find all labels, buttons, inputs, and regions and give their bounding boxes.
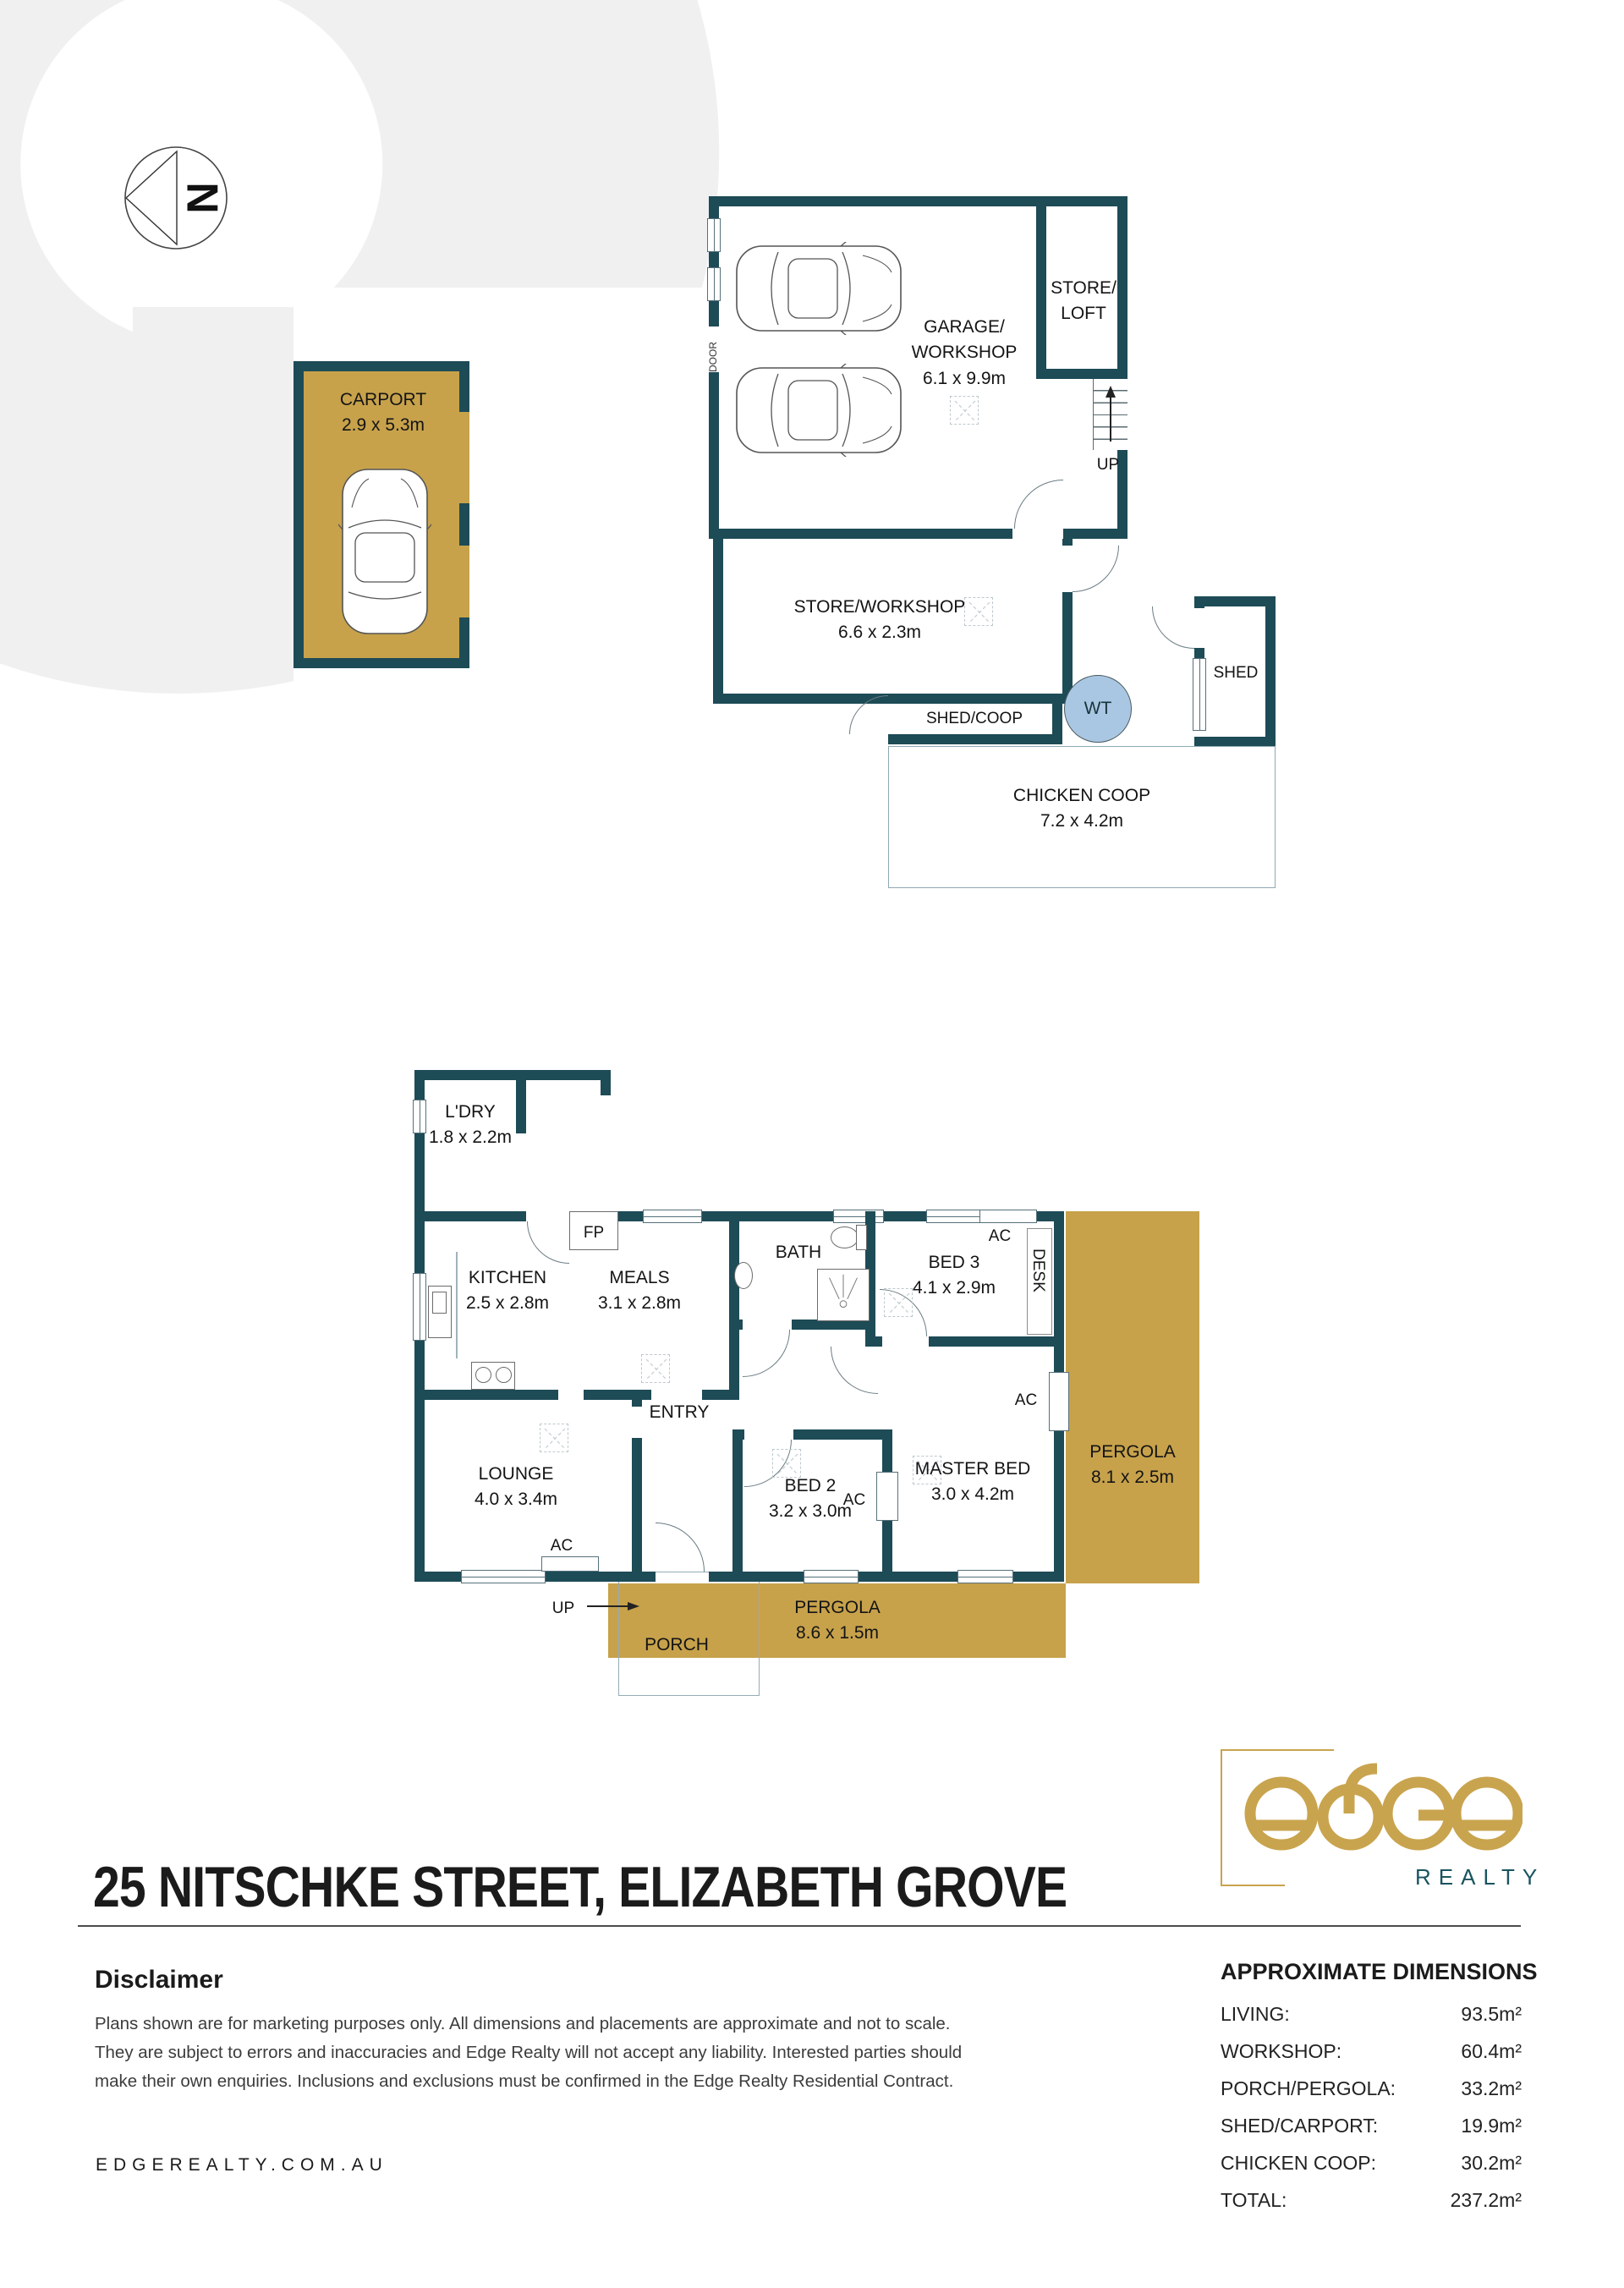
- dim-value: 237.2m²: [1451, 2189, 1522, 2212]
- wall: [459, 371, 469, 412]
- ceiling-fan-icon: [641, 1354, 670, 1383]
- wall: [414, 1211, 526, 1221]
- floorplan-page: N CARPORT2.9 x 5.3m DOOR UP STORE/LOFT G…: [0, 0, 1624, 2288]
- wall: [414, 1070, 425, 1100]
- wall: [875, 1336, 882, 1347]
- door-arc: [527, 1221, 569, 1264]
- ceiling-fan-icon: [540, 1424, 568, 1452]
- wall: [713, 539, 723, 704]
- water-tank: WT: [1064, 675, 1132, 743]
- logo-frame: [1221, 1885, 1285, 1886]
- meals-label: MEALS3.1 x 2.8m: [598, 1265, 681, 1317]
- ldry-label: L'DRY1.8 x 2.2m: [429, 1100, 512, 1151]
- window: [833, 1210, 884, 1223]
- wall: [294, 361, 469, 371]
- dim-value: 19.9m²: [1461, 2115, 1522, 2137]
- wall: [1117, 196, 1127, 539]
- wall: [884, 1211, 926, 1221]
- store-loft-label: STORE/LOFT: [1051, 276, 1116, 327]
- ceiling-fan-icon: [964, 597, 993, 626]
- dimensions-heading: APPROXIMATE DIMENSIONS: [1221, 1959, 1538, 1985]
- wall: [1063, 529, 1127, 539]
- dimensions-table: LIVING:93.5m² WORKSHOP:60.4m² PORCH/PERG…: [1221, 2003, 1522, 2226]
- wall: [414, 1133, 425, 1273]
- shower: [817, 1269, 870, 1321]
- wall: [414, 1390, 558, 1400]
- counter-line: [456, 1252, 458, 1358]
- logo-frame: [1221, 1749, 1222, 1886]
- wall: [1194, 596, 1276, 606]
- bed2-label: BED 23.2 x 3.0m: [769, 1473, 852, 1525]
- wall: [929, 1336, 1064, 1347]
- window: [957, 1570, 1013, 1583]
- ac-unit: [979, 1210, 1037, 1223]
- pergola-side-label: PERGOLA8.1 x 2.5m: [1089, 1440, 1176, 1491]
- ac-unit: [1049, 1372, 1069, 1431]
- dim-label: WORKSHOP:: [1221, 2040, 1341, 2063]
- svg-text:N: N: [177, 182, 226, 214]
- ceiling-fan-icon: [950, 396, 979, 425]
- ac-unit: [876, 1472, 898, 1521]
- dimension-row: SHED/CARPORT:19.9m²: [1221, 2115, 1522, 2137]
- up-arrow-icon: [585, 1599, 645, 1614]
- ac-label: AC: [989, 1225, 1011, 1248]
- wall: [294, 361, 304, 668]
- wall: [1194, 596, 1204, 608]
- wall: [1265, 596, 1276, 747]
- bed3-label: BED 34.1 x 2.9m: [913, 1250, 996, 1302]
- wall: [859, 1572, 957, 1582]
- dimension-row: LIVING:93.5m²: [1221, 2003, 1522, 2026]
- pergola-side-area: [1066, 1211, 1199, 1583]
- edge-logo-icon: [1243, 1761, 1522, 1859]
- door-arc: [1073, 546, 1119, 592]
- pergola-rear-label: PERGOLA8.6 x 1.5m: [794, 1595, 881, 1647]
- garage-label: GARAGE/WORKSHOP6.1 x 9.9m: [912, 315, 1018, 392]
- master-bed-label: MASTER BED3.0 x 4.2m: [915, 1457, 1031, 1508]
- wall: [1036, 196, 1046, 379]
- car-icon: [734, 364, 903, 457]
- wall: [459, 617, 469, 658]
- dim-label: TOTAL:: [1221, 2189, 1287, 2212]
- stove-burner: [475, 1367, 491, 1383]
- page-title: 25 NITSCHKE STREET, ELIZABETH GROVE: [93, 1854, 1067, 1920]
- door-arc: [656, 1523, 705, 1572]
- disclaimer-line: make their own enquiries. Inclusions and…: [95, 2067, 962, 2096]
- wall: [793, 1429, 892, 1440]
- shed-label: SHED: [1214, 661, 1259, 685]
- divider: [78, 1925, 1521, 1927]
- disclaimer-line: They are subject to errors and inaccurac…: [95, 2038, 962, 2067]
- wall: [1062, 539, 1073, 546]
- wall: [729, 1320, 743, 1330]
- door-arc: [831, 1347, 878, 1394]
- window: [413, 1273, 426, 1341]
- store-workshop-label: STORE/WORKSHOP6.6 x 2.3m: [794, 595, 966, 646]
- wall: [702, 1390, 739, 1400]
- dim-value: 33.2m²: [1461, 2077, 1522, 2100]
- window: [707, 218, 721, 252]
- door-arc: [1152, 606, 1194, 649]
- dimension-row: WORKSHOP:60.4m²: [1221, 2040, 1522, 2063]
- door-label: DOOR: [707, 328, 719, 372]
- window: [643, 1210, 702, 1223]
- kitchen-label: KITCHEN2.5 x 2.8m: [466, 1265, 549, 1317]
- dimension-row: TOTAL:237.2m²: [1221, 2189, 1522, 2212]
- stairs-up-arrow-icon: [1096, 381, 1125, 448]
- porch-label: PORCH: [645, 1632, 709, 1658]
- website-link[interactable]: EDGEREALTY.COM.AU: [96, 2155, 388, 2176]
- wall: [1194, 648, 1204, 658]
- ac-unit: [541, 1556, 599, 1572]
- up-label: UP: [552, 1597, 574, 1621]
- wall: [294, 658, 469, 668]
- wall: [709, 196, 1127, 206]
- entry-label: ENTRY: [650, 1400, 710, 1425]
- up-label: UP: [1097, 453, 1119, 477]
- door-arc: [743, 1330, 790, 1377]
- wall: [618, 1211, 643, 1221]
- toilet-tank: [856, 1225, 867, 1250]
- wall: [414, 1341, 425, 1582]
- disclaimer-line: Plans shown are for marketing purposes o…: [95, 2010, 962, 2038]
- logo-realty-label: REALTY: [1415, 1864, 1544, 1890]
- wall: [709, 529, 1012, 539]
- wall: [729, 1330, 739, 1390]
- window: [1193, 658, 1206, 731]
- dimension-row: PORCH/PERGOLA:33.2m²: [1221, 2077, 1522, 2100]
- window: [707, 267, 721, 301]
- ceiling-fan-icon: [884, 1288, 913, 1317]
- wall: [713, 694, 1073, 704]
- dim-value: 30.2m²: [1461, 2152, 1522, 2175]
- toilet: [831, 1226, 859, 1248]
- wall: [1062, 592, 1073, 694]
- logo-frame: [1221, 1749, 1334, 1751]
- wall: [1036, 369, 1127, 379]
- window: [804, 1570, 859, 1583]
- sink-bowl: [432, 1292, 447, 1314]
- window: [461, 1570, 546, 1583]
- disclaimer-heading: Disclaimer: [95, 1966, 223, 1994]
- wall: [1052, 694, 1062, 744]
- dimension-row: CHICKEN COOP:30.2m²: [1221, 2152, 1522, 2175]
- car-icon: [338, 467, 431, 636]
- carport-label: CARPORT2.9 x 5.3m: [340, 387, 426, 439]
- chicken-coop-label: CHICKEN COOP7.2 x 4.2m: [1013, 783, 1150, 835]
- wall: [632, 1390, 642, 1407]
- wall: [709, 1572, 804, 1582]
- wall: [888, 734, 1062, 744]
- dim-label: CHICKEN COOP:: [1221, 2152, 1376, 2175]
- wall: [414, 1070, 611, 1080]
- dim-label: PORCH/PERGOLA:: [1221, 2077, 1396, 2100]
- ac-label: AC: [1015, 1389, 1037, 1413]
- wall: [546, 1572, 656, 1582]
- dim-label: LIVING:: [1221, 2003, 1290, 2026]
- desk-label: DESK: [1029, 1248, 1047, 1292]
- wall: [632, 1438, 642, 1572]
- wall: [1013, 1572, 1064, 1582]
- window: [413, 1100, 426, 1133]
- bath-label: BATH: [776, 1240, 821, 1265]
- door-arc: [1014, 480, 1063, 529]
- wall: [459, 503, 469, 546]
- wall: [702, 1211, 833, 1221]
- shed-coop-label: SHED/COOP: [926, 707, 1023, 731]
- north-arrow-icon: N: [121, 143, 231, 253]
- ac-label: AC: [551, 1534, 573, 1558]
- car-icon: [734, 242, 903, 335]
- wall: [601, 1080, 611, 1095]
- fp-label: FP: [584, 1221, 604, 1245]
- wall: [732, 1429, 743, 1582]
- dim-value: 60.4m²: [1461, 2040, 1522, 2063]
- lounge-label: LOUNGE4.0 x 3.4m: [475, 1462, 557, 1513]
- wall: [516, 1070, 526, 1133]
- wall: [414, 1572, 461, 1582]
- dim-label: SHED/CARPORT:: [1221, 2115, 1378, 2137]
- vanity: [734, 1262, 753, 1289]
- dim-value: 93.5m²: [1461, 2003, 1522, 2026]
- stove-burner: [496, 1367, 512, 1383]
- window: [926, 1210, 985, 1223]
- disclaimer-text: Plans shown are for marketing purposes o…: [95, 2010, 962, 2096]
